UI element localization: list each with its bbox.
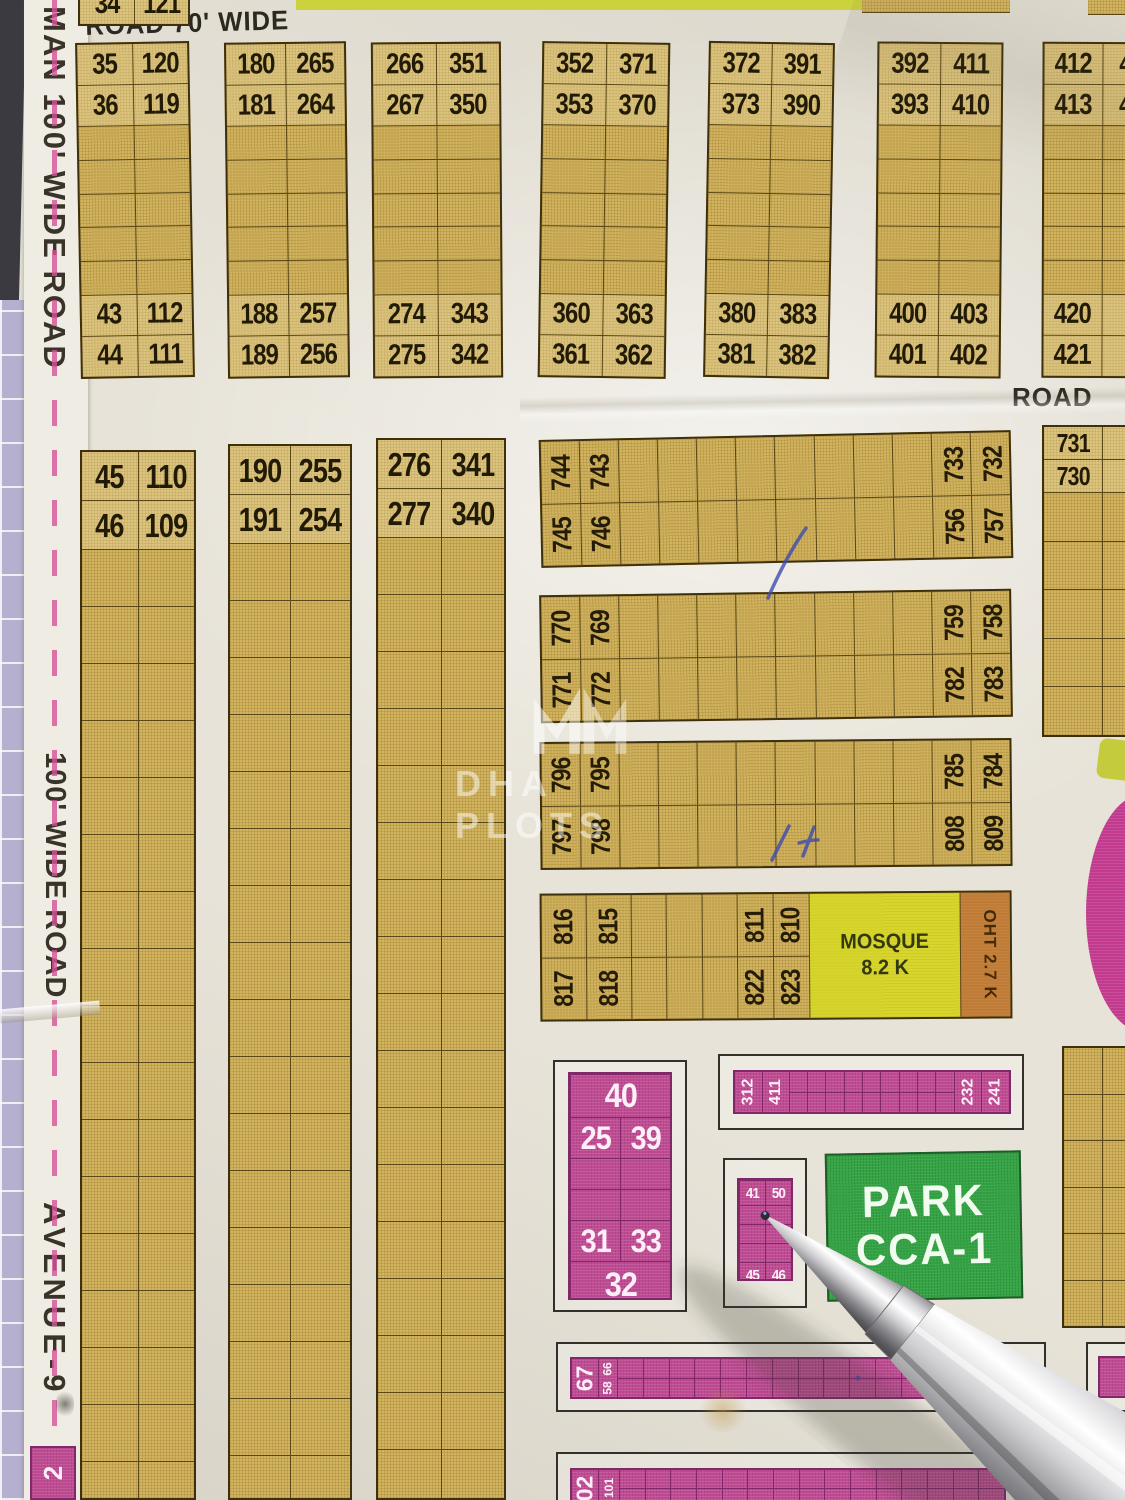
- plot-cell: [722, 1470, 748, 1500]
- plot-cell: [1044, 193, 1102, 226]
- plot-cell: 400: [877, 294, 938, 335]
- plot-cell: 36: [78, 85, 133, 126]
- plot-number: 25: [580, 1122, 610, 1154]
- plot-row: 44111: [82, 334, 193, 377]
- plot-cell: [878, 227, 939, 260]
- plot-cell: [1044, 493, 1102, 541]
- plot-block-top: 372391373390380383381382: [703, 41, 835, 379]
- plot-row: [1044, 541, 1125, 590]
- plot-number-rotated: 732: [973, 432, 1013, 495]
- plot-row: [378, 1221, 504, 1278]
- plot-number: 410: [952, 91, 989, 120]
- cell-divider: [845, 1092, 862, 1093]
- plot-number: 276: [388, 448, 431, 481]
- plot-row: [378, 1050, 504, 1107]
- plot-row: 190255: [230, 446, 350, 494]
- plot-grid: 372391373390380383381382: [705, 43, 833, 377]
- plot-cell: [138, 949, 195, 1005]
- plot-number: 46: [772, 1268, 785, 1281]
- plot-cell: [657, 595, 697, 657]
- plot-cell: [814, 741, 854, 803]
- plot-block-top: 35120361194311244111: [75, 41, 195, 379]
- plot-number: 731: [1056, 430, 1089, 456]
- plot-cell: [441, 709, 505, 765]
- plot-number-rotated: 797: [542, 806, 582, 868]
- plot-cell: [899, 1072, 917, 1112]
- plot-number: 191: [238, 503, 281, 536]
- plot-block-partial: 34121: [78, 0, 190, 26]
- plot-number-rotated: 783: [975, 653, 1013, 716]
- plot-cell: [854, 803, 894, 865]
- plot-grid: 402539313332: [570, 1074, 670, 1298]
- plot-number-rotated: 817: [542, 957, 586, 1019]
- plot-cell: [441, 994, 505, 1050]
- plot-cell: [938, 194, 1000, 227]
- plot-row: [82, 1176, 194, 1233]
- plot-cell: 232: [954, 1072, 982, 1112]
- plot-cell: [138, 664, 195, 720]
- plot-cell: [978, 1470, 1004, 1500]
- plot-number: 808: [942, 815, 969, 851]
- plot-cell: [815, 804, 855, 866]
- mosque-label: MOSQUE: [840, 929, 929, 956]
- plot-cell: 341: [441, 440, 505, 488]
- plot-cell: [1102, 1141, 1125, 1187]
- plot-row: [82, 1347, 194, 1404]
- plot-cell: [82, 892, 138, 948]
- plot-number-rotated: 798: [581, 805, 621, 867]
- plot-cell: [138, 1120, 195, 1176]
- plot-cell: [893, 496, 933, 558]
- plot-cell: [815, 655, 855, 717]
- plot-row: 4150: [739, 1180, 791, 1205]
- plot-number: 112: [146, 300, 182, 330]
- plot-cell: [694, 1359, 720, 1397]
- plot-cell: 390: [770, 85, 832, 126]
- plot-block-top: 266351267350274343275342: [371, 42, 503, 379]
- oht-block: OHT 2.7 K: [960, 892, 1013, 1016]
- plot-row: [378, 1335, 504, 1392]
- plot-number: 818: [596, 970, 623, 1006]
- plot-number-rotated: 757: [975, 494, 1014, 557]
- plot-grid: 34121: [80, 0, 188, 24]
- plot-cell: [938, 227, 1000, 260]
- plot-cell: [1044, 227, 1102, 260]
- plot-number: 110: [146, 460, 187, 493]
- plot-cell: 340: [441, 489, 505, 537]
- plot-cell: [378, 1279, 441, 1335]
- plot-cell: [378, 937, 441, 993]
- plot-cell: [441, 1336, 505, 1392]
- plot-cell: 43: [81, 295, 136, 336]
- plot-number: 382: [778, 342, 816, 372]
- plot-number-rotated: 241: [988, 1079, 1004, 1106]
- plot-number: 810: [778, 907, 805, 943]
- plot-number: 351: [449, 49, 486, 78]
- plot-strip: 770771769772759782758783: [539, 589, 1013, 724]
- plot-number: 32: [604, 1268, 636, 1300]
- plot-cell: 342: [437, 336, 501, 376]
- plot-number: 36: [93, 91, 118, 120]
- cell-divider: [799, 1378, 824, 1379]
- plot-cell: [290, 772, 351, 828]
- plot-cell: [134, 193, 190, 227]
- plot-row: [542, 192, 666, 228]
- plot-number: 782: [942, 666, 969, 702]
- plot-cell: [437, 261, 501, 294]
- plot-cell: [290, 715, 351, 771]
- plot-subcell: 101: [599, 1470, 619, 1500]
- plot-cell: [658, 501, 698, 563]
- cell-divider: [703, 956, 737, 957]
- plot-cell: [441, 1222, 505, 1278]
- cell-divider: [670, 1378, 695, 1379]
- plot-number: 390: [783, 91, 821, 121]
- plot-row: [230, 1398, 350, 1455]
- plot-row: [82, 663, 194, 720]
- cell-divider: [979, 1488, 1004, 1489]
- plot-number-rotated: 411: [768, 1079, 784, 1105]
- plot-cell: 403: [937, 295, 999, 336]
- plot-cell: 265: [284, 43, 344, 84]
- plot-cell: [891, 434, 931, 496]
- plot-cell: [79, 160, 134, 194]
- plot-row: 41243: [1044, 44, 1125, 84]
- plot-number: 796: [548, 757, 575, 793]
- plot-cell: 46: [82, 501, 138, 549]
- plot-cell: [768, 227, 830, 261]
- plot-cell: [1044, 160, 1102, 193]
- cell-divider: [881, 1092, 898, 1093]
- plot-row: [378, 708, 504, 765]
- plot-number: 190: [238, 454, 281, 487]
- plot-number: 35: [92, 50, 117, 79]
- cell-divider: [723, 1488, 748, 1489]
- plot-cell: [917, 1072, 935, 1112]
- plot-cell: [82, 1063, 138, 1119]
- plot-cell: [378, 538, 441, 594]
- plot-row: [227, 124, 345, 159]
- plot-cell: [287, 260, 347, 294]
- cell-divider: [877, 1488, 902, 1489]
- plot-row: [739, 1205, 791, 1224]
- mosque-block: MOSQUE8.2 K: [809, 893, 961, 1018]
- plot-row: [230, 828, 350, 885]
- plot-cell: [79, 126, 134, 160]
- plot-row: 45110: [82, 452, 194, 500]
- plot-row: 401402: [877, 334, 999, 376]
- plot-number: 413: [1054, 90, 1091, 119]
- plot-cell: 815818: [586, 895, 632, 1019]
- plot-number: 783: [981, 666, 1008, 702]
- cell-divider: [667, 957, 702, 958]
- plot-row: 353370: [543, 83, 668, 126]
- plot-row: [1044, 686, 1125, 735]
- plot-number: 363: [615, 301, 653, 331]
- plot-row: [542, 158, 666, 194]
- plot-cell: [378, 766, 441, 822]
- plot-number-rotated: 232: [960, 1079, 976, 1106]
- cell-divider: [902, 1488, 927, 1489]
- plot-cell: [374, 227, 437, 260]
- plot-number: 756: [942, 508, 970, 544]
- plot-row: [570, 1158, 670, 1189]
- plot-row: [82, 1461, 194, 1500]
- plot-cell: 412: [1044, 44, 1102, 84]
- plot-cell: [138, 1405, 195, 1461]
- plot-number-rotated: 746: [581, 502, 622, 565]
- plot-number: 822: [742, 969, 769, 1005]
- plot-cell: 45: [739, 1263, 765, 1281]
- plot-cell: [619, 1470, 645, 1500]
- plot-cell: [849, 1359, 875, 1397]
- plot-cell: 180: [226, 44, 285, 85]
- plot-cell: [437, 227, 501, 260]
- plot-cell: [1102, 1234, 1125, 1280]
- road-centerline-dashed: [52, 0, 57, 1500]
- plot-cell: [773, 1470, 799, 1500]
- plot-number-rotated: 782: [935, 653, 975, 716]
- plot-cell: [82, 1177, 138, 1233]
- plot-number: 730: [1056, 463, 1089, 489]
- plot-cell: [927, 1359, 953, 1397]
- plot-cell: [138, 1291, 195, 1347]
- plot-number-rotated: 02: [574, 1475, 597, 1500]
- plot-row: [1064, 1187, 1125, 1234]
- plot-number: 41: [746, 1186, 759, 1201]
- plot-row: [374, 260, 500, 295]
- plot-row: [1044, 589, 1125, 638]
- plot-cell: [1102, 590, 1125, 638]
- cell-divider: [900, 1092, 917, 1093]
- plot-row: [1064, 1094, 1125, 1141]
- plot-cell: 6: [1102, 460, 1125, 492]
- plot-number: 121: [143, 0, 180, 19]
- plot-cell: 110: [138, 452, 195, 500]
- plot-row: [378, 1449, 504, 1500]
- plot-cell: 257: [288, 294, 348, 335]
- plot-row: [80, 225, 191, 261]
- plot-number: 744: [547, 454, 575, 490]
- plot-cell: [374, 194, 437, 227]
- plot-row: [378, 993, 504, 1050]
- cell-divider: [721, 1378, 746, 1379]
- plot-row: [82, 1233, 194, 1290]
- plot-cell: [939, 160, 1001, 193]
- plot-cell: [542, 193, 604, 227]
- plot-number: 264: [297, 90, 335, 119]
- plot-cell: [953, 1470, 979, 1500]
- plot-cell: [878, 159, 939, 192]
- plot-number-rotated: 811: [738, 894, 773, 956]
- plot-cell: [892, 592, 932, 654]
- plot-cell: [603, 194, 666, 228]
- plot-cell: 382: [766, 336, 828, 377]
- plot-row: [543, 124, 667, 160]
- plot-row: 4214: [1043, 335, 1125, 376]
- plot-row: [739, 1243, 791, 1262]
- park-label-line1: PARK: [862, 1177, 986, 1227]
- plot-cell: [1102, 160, 1125, 193]
- plot-number: 189: [240, 342, 278, 371]
- plot-cell: [441, 1165, 505, 1221]
- plot-cell: [765, 1206, 791, 1224]
- plot-cell: [602, 261, 665, 295]
- plot-cell: [696, 595, 736, 657]
- plot-cell: [230, 1057, 290, 1113]
- plot-cell: [657, 439, 697, 501]
- cell-divider: [620, 1488, 645, 1489]
- plot-cell: 6658: [598, 1359, 617, 1397]
- plot-row: [541, 226, 665, 262]
- plot-number: 46: [96, 509, 124, 542]
- plot-cell: 33: [620, 1221, 670, 1261]
- plot-row: [82, 1005, 194, 1062]
- plot-cell: [658, 805, 698, 867]
- plot-row: [373, 125, 499, 160]
- plot-cell: [378, 1336, 441, 1392]
- plot-number-rotated: 809: [975, 802, 1013, 864]
- cell-divider: [824, 1378, 849, 1379]
- plot-cell: [823, 1359, 849, 1397]
- plot-row: 32: [570, 1261, 670, 1300]
- plot-cell: [290, 1285, 351, 1341]
- plot-cell: [230, 772, 290, 828]
- plot-cell: [1101, 227, 1125, 260]
- cell-divider: [774, 1488, 799, 1489]
- plot-row: 43112: [81, 293, 192, 336]
- plot-number: 772: [588, 671, 615, 707]
- plot-row: [378, 1392, 504, 1449]
- plot-cell: [772, 1359, 798, 1397]
- plot-number: 257: [299, 300, 337, 329]
- plot-cell: [619, 502, 659, 564]
- plot-number: 275: [388, 342, 425, 371]
- plot-row: [378, 936, 504, 993]
- plot-strip: 796797795798785808784809: [539, 738, 1012, 870]
- plot-row: [81, 259, 192, 295]
- plot-number: 340: [451, 497, 494, 530]
- plot-cell: 343: [437, 295, 501, 335]
- plot-number-rotated: 758: [974, 591, 1013, 654]
- plot-cell: [799, 1470, 825, 1500]
- plot-cell: [82, 1291, 138, 1347]
- plot-cell: [378, 1165, 441, 1221]
- plot-cell: 277: [378, 489, 441, 537]
- plot-number: 341: [451, 448, 494, 481]
- plot-number: 400: [889, 300, 926, 329]
- plot-row: [1044, 638, 1125, 687]
- plot-cell: 275: [375, 336, 438, 376]
- plot-cell: [82, 1006, 138, 1062]
- plot-row: [82, 720, 194, 777]
- plot-number: 31: [580, 1225, 610, 1257]
- plot-block-top: 352371353370360363361362: [538, 41, 671, 379]
- plot-number: 45: [96, 460, 124, 493]
- plot-grid: 412434134342044214: [1043, 44, 1125, 376]
- plot-row: [82, 948, 194, 1005]
- cell-divider: [826, 1092, 843, 1093]
- plot-number: 353: [555, 90, 593, 120]
- plot-number: 746: [588, 516, 616, 552]
- plot-cell: [696, 438, 736, 500]
- plot-number: 798: [588, 819, 615, 855]
- park-label-line2: CCA-1: [855, 1225, 993, 1275]
- plot-row: [378, 1107, 504, 1164]
- plot-row: [230, 657, 350, 714]
- plot-number: 370: [618, 91, 656, 121]
- plot-cell: [1064, 1188, 1102, 1234]
- plot-number: 391: [783, 50, 821, 80]
- cell-divider: [748, 1488, 773, 1489]
- plot-cell: [230, 829, 290, 885]
- plot-number: 360: [552, 300, 590, 330]
- plot-cell: 730: [1044, 460, 1102, 492]
- plot-number: 352: [556, 49, 594, 79]
- plot-row: 7316: [1044, 427, 1125, 459]
- plot-row: [1044, 159, 1125, 193]
- plot-number: 50: [772, 1186, 785, 1201]
- plot-cell: 25: [570, 1118, 620, 1158]
- plot-cell: [852, 435, 892, 497]
- plot-row: 400403: [877, 293, 999, 335]
- plot-cell: [378, 1393, 441, 1449]
- cell-divider: [808, 1092, 825, 1093]
- plot-number: 181: [237, 91, 275, 120]
- plot-cell: [1102, 1281, 1125, 1327]
- plot-grid: 266351267350274343275342: [373, 44, 501, 377]
- plot-number: 745: [548, 516, 576, 552]
- plot-number: 373: [721, 90, 759, 120]
- plot-row: 2539: [570, 1117, 670, 1158]
- plot-cell: [765, 1244, 791, 1262]
- cell-divider: [697, 1488, 722, 1489]
- plot-number: 797: [548, 819, 575, 855]
- plot-cell: [735, 437, 775, 499]
- plot-row: [230, 942, 350, 999]
- plot-cell: [227, 126, 286, 160]
- plot-number: 381: [717, 341, 755, 371]
- pink-block-main: 402539313332: [568, 1072, 672, 1300]
- plot-number-rotated: 810: [774, 894, 809, 956]
- plot-row: [82, 1062, 194, 1119]
- plot-number-rotated: 822: [738, 956, 773, 1018]
- plot-cell: [878, 193, 939, 226]
- plot-column: 190255191254: [228, 444, 352, 1500]
- plot-cell: [789, 1072, 807, 1112]
- plot-cell: [138, 550, 195, 606]
- plot-number-rotated: 818: [587, 957, 631, 1019]
- plot-number: 39: [630, 1122, 660, 1154]
- plot-row: [227, 158, 345, 193]
- plot-cell: 34: [80, 0, 134, 24]
- plot-cell: [1102, 639, 1125, 687]
- plot-cell: [441, 1450, 505, 1500]
- plot-cell: [80, 227, 135, 261]
- plot-cell: [290, 1000, 351, 1056]
- plot-cell: [736, 742, 776, 804]
- plot-cell: [378, 880, 441, 936]
- plot-number-rotated: 796: [541, 744, 581, 806]
- plot-row: [707, 259, 830, 295]
- plot-row: [80, 192, 191, 228]
- plot-row: [79, 124, 190, 160]
- plot-cell: 4: [1101, 295, 1125, 335]
- plot-row: 352371: [544, 43, 669, 85]
- plot-number: 795: [587, 757, 614, 793]
- plot-cell: [290, 544, 351, 600]
- plot-cell: [436, 159, 500, 192]
